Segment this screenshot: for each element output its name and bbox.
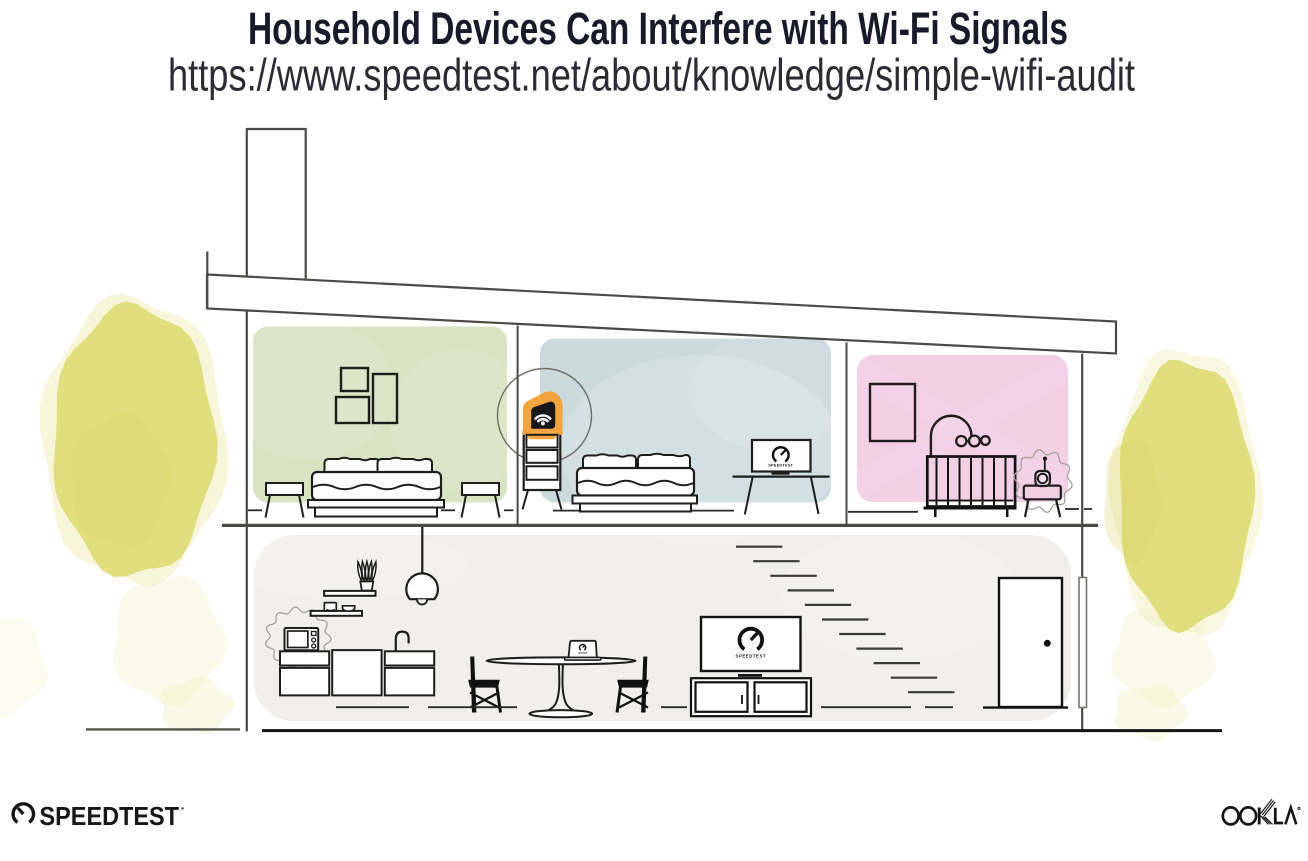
svg-text:https://www.speedtest.net/abou: https://www.speedtest.net/about/knowledg… <box>168 50 1135 101</box>
svg-text:SPEEDTEST: SPEEDTEST <box>736 653 767 658</box>
svg-text:SPEEDTEST: SPEEDTEST <box>40 803 180 831</box>
svg-text:SPEEDTEST: SPEEDTEST <box>768 463 793 467</box>
svg-text:Household Devices Can Interfer: Household Devices Can Interfere with Wi-… <box>248 3 1068 54</box>
